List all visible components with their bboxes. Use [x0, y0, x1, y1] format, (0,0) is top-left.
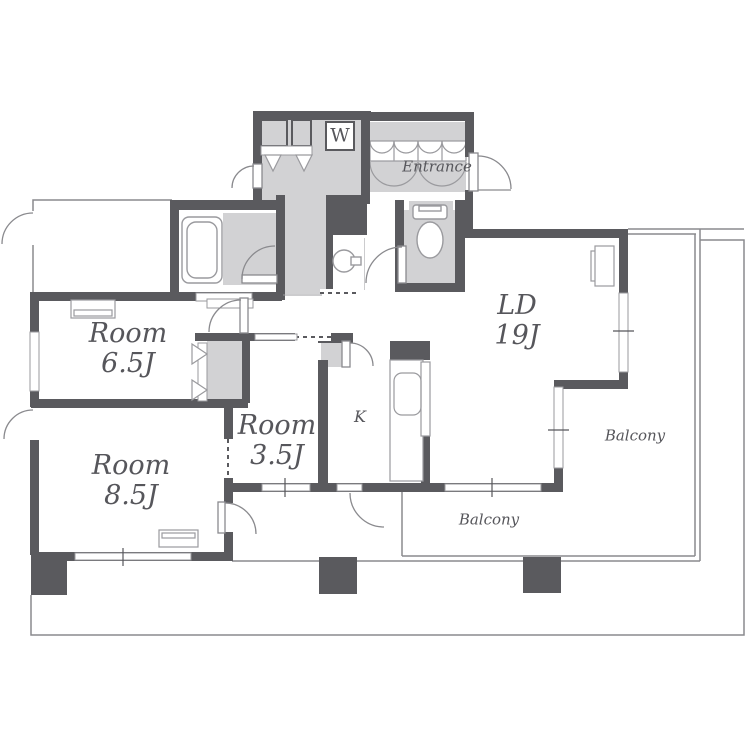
bathroom-floor — [223, 213, 277, 285]
door-room85-left — [4, 410, 33, 439]
kitchen-label: K — [354, 408, 366, 426]
washbasin — [333, 235, 364, 292]
entrance-cabinet — [370, 122, 466, 141]
closet-shelf — [261, 146, 312, 155]
door-washroom — [232, 164, 262, 188]
door-front-entrance — [469, 153, 511, 191]
balcony-bottom-label: Balcony — [459, 512, 519, 529]
window-ld-bottom — [445, 484, 541, 491]
room-6.5j-label: Room6.5J — [89, 319, 167, 379]
ac-unit-ld — [591, 246, 614, 286]
window-ld-step — [554, 387, 563, 468]
room-3.5j-label: Room3.5J — [238, 411, 316, 471]
door-toilet — [366, 246, 406, 283]
door-porch — [2, 213, 33, 244]
pillars — [31, 557, 561, 595]
ac-unit-room85 — [159, 530, 198, 547]
closet-65-doors — [192, 343, 207, 401]
porch-outline — [33, 200, 172, 292]
closet-65-floor — [207, 341, 243, 403]
window-kitchen-bottom — [337, 484, 362, 491]
window-room35-bottom — [262, 484, 310, 491]
ld-label: LD19J — [494, 291, 539, 351]
window-room65-left — [30, 332, 39, 391]
ac-unit-room65 — [71, 300, 115, 318]
floor-plan: Room6.5J Room8.5J Room3.5J LD19J K Entra… — [0, 0, 750, 750]
entrance-label: Entrance — [402, 159, 472, 176]
door-kitchen-balcony — [350, 493, 384, 527]
balcony-right-label: Balcony — [605, 428, 665, 445]
window-room85-bottom — [75, 553, 191, 560]
door-room85-balcony — [218, 502, 256, 534]
washer-label: W — [330, 125, 350, 146]
bathtub — [182, 217, 222, 283]
washroom-corridor-floor — [283, 201, 326, 294]
window-ld-right — [619, 293, 628, 372]
room-8.5j-label: Room8.5J — [92, 451, 170, 511]
door-room35 — [342, 341, 373, 367]
faucet-icon — [351, 257, 361, 265]
